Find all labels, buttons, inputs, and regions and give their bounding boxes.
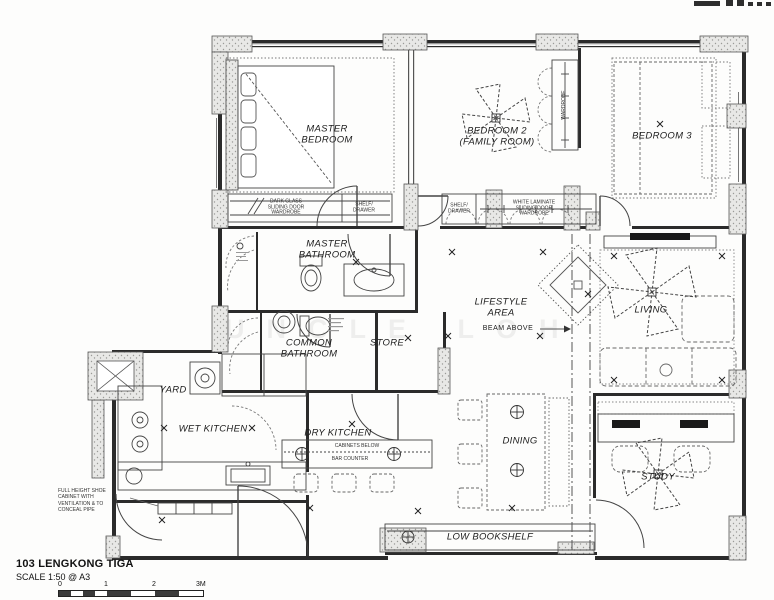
scale-bar-segments	[58, 590, 204, 597]
master-bed	[226, 58, 394, 192]
scale-tick-0: 0	[58, 581, 62, 588]
pendant-light-icon	[296, 406, 524, 544]
master-wardrobe	[228, 194, 392, 222]
common-bathroom-fixtures	[273, 311, 344, 336]
scale-bar: 0 1 2 3M	[58, 581, 218, 600]
living-furniture	[600, 233, 736, 386]
wet-kitchen-fixtures	[118, 354, 306, 490]
structural-columns	[92, 34, 748, 560]
project-name: 103 LENGKONG TIGA	[16, 558, 134, 570]
scale-tick-1: 1	[104, 581, 108, 588]
floorplan-drawing	[0, 0, 774, 600]
floorplan-page: UNCLE LOH MASTER BEDROOM BEDROOM 2 (FAMI…	[0, 0, 774, 600]
dining-furniture	[458, 394, 569, 510]
shoe-cabinet-annotation: FULL HEIGHT SHOE CABINET WITH VENTILATIO…	[58, 488, 114, 513]
interior-walls	[116, 48, 746, 556]
beam-above-lines	[540, 234, 590, 552]
exterior-walls	[112, 40, 748, 560]
title-block: 103 LENGKONG TIGA SCALE 1:50 @ A3	[16, 558, 134, 582]
diamond-table	[538, 245, 618, 325]
ceiling-fan-icon	[608, 248, 696, 336]
study-furniture	[598, 402, 734, 472]
bedroom3-furniture	[612, 58, 730, 198]
ceiling-fan-icon	[462, 84, 530, 152]
scale-tick-3: 3M	[196, 581, 206, 588]
yard-shaft	[88, 352, 143, 400]
ceiling-fan-icon	[622, 438, 694, 510]
cropped-logo-icon	[694, 0, 771, 6]
master-bathroom-fixtures	[236, 243, 404, 296]
scale-tick-2: 2	[152, 581, 156, 588]
